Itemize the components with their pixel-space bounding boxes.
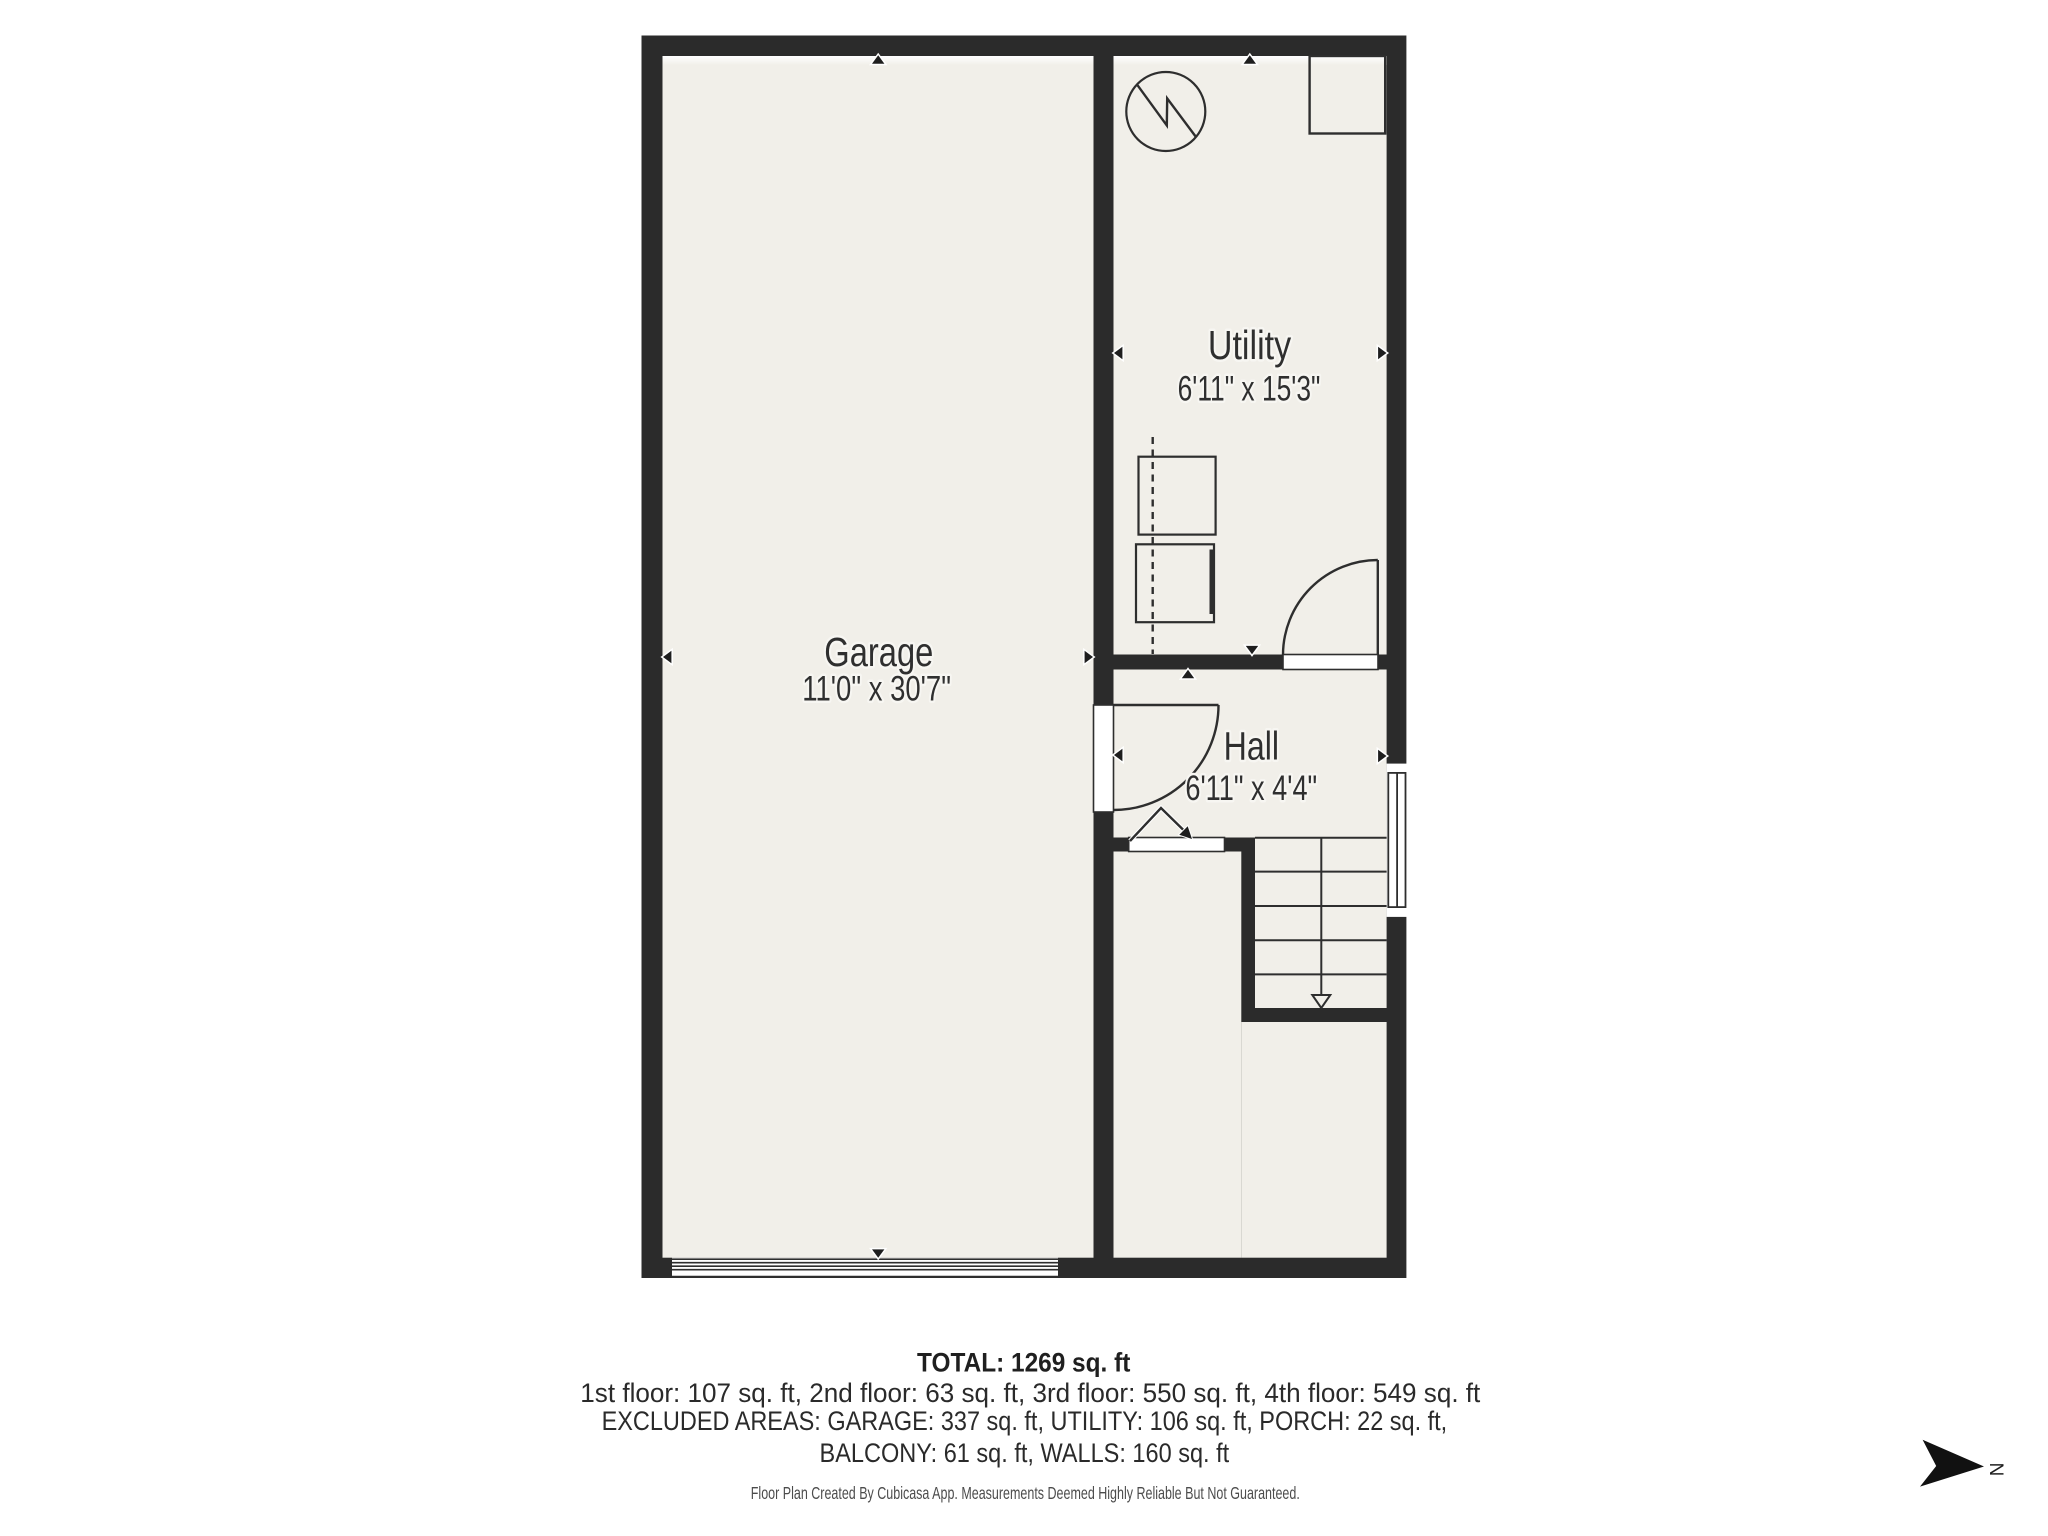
- svg-text:N: N: [1985, 1462, 2006, 1476]
- svg-text:Garage: Garage: [824, 629, 933, 675]
- svg-text:6'11" x 15'3": 6'11" x 15'3": [1178, 369, 1321, 408]
- svg-text:11'0" x 30'7": 11'0" x 30'7": [802, 670, 951, 709]
- svg-text:1st floor: 107 sq. ft, 2nd flo: 1st floor: 107 sq. ft, 2nd floor: 63 sq.…: [580, 1378, 1480, 1408]
- svg-text:EXCLUDED AREAS: GARAGE: 337 sq: EXCLUDED AREAS: GARAGE: 337 sq. ft, UTIL…: [602, 1406, 1448, 1436]
- svg-text:Hall: Hall: [1224, 724, 1279, 768]
- svg-text:6'11" x 4'4": 6'11" x 4'4": [1185, 769, 1317, 808]
- svg-text:BALCONY: 61 sq. ft, WALLS: 160: BALCONY: 61 sq. ft, WALLS: 160 sq. ft: [820, 1438, 1230, 1468]
- svg-text:Utility: Utility: [1208, 322, 1292, 368]
- svg-text:TOTAL: 1269 sq. ft: TOTAL: 1269 sq. ft: [917, 1348, 1130, 1378]
- svg-text:Floor Plan Created By Cubicasa: Floor Plan Created By Cubicasa App. Meas…: [751, 1483, 1300, 1503]
